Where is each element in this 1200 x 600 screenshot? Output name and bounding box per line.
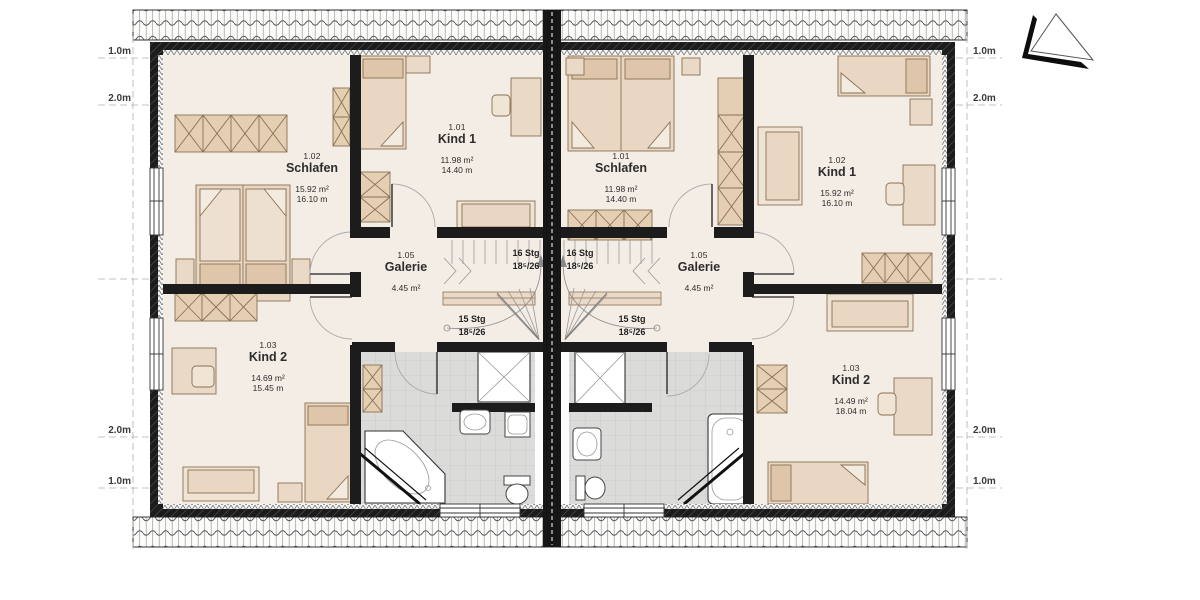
room-label-kind2-right: 1.03 Kind 2 14.49 m² 18.04 m — [832, 363, 870, 416]
stair-ratio: 18⁵/26 — [512, 260, 539, 273]
stair-label-16-right: 16 Stg 18⁵/26 — [566, 247, 593, 273]
height-label-left-1: 1.0m — [81, 46, 131, 57]
wardrobe-icon — [757, 365, 787, 413]
side-table-icon — [278, 483, 302, 502]
sink-icon — [573, 428, 601, 460]
window-left-1 — [150, 168, 163, 235]
height-label-right-4: 1.0m — [973, 476, 1023, 487]
room-area: 11.98 m² — [595, 184, 647, 194]
room-label-kind2-left: 1.03 Kind 2 14.69 m² 15.45 m — [249, 340, 287, 393]
nightstand-icon — [566, 58, 584, 75]
room-area: 14.69 m² — [249, 373, 287, 383]
height-label-right-2: 2.0m — [973, 93, 1023, 104]
stair-label-15-left: 15 Stg 18⁵/26 — [458, 313, 485, 339]
stair-ratio: 18⁵/26 — [458, 326, 485, 339]
wardrobe-icon — [862, 253, 932, 283]
height-label-left-4: 1.0m — [81, 476, 131, 487]
room-area: 14.49 m² — [832, 396, 870, 406]
window-right-1 — [942, 168, 955, 235]
window-right-2 — [942, 318, 955, 390]
nightstand-icon — [292, 259, 310, 285]
room-name: Kind 2 — [249, 350, 287, 365]
shower-icon — [478, 352, 530, 402]
sofa-icon — [183, 467, 259, 501]
wardrobe-icon — [175, 293, 257, 321]
room-name: Galerie — [678, 260, 720, 275]
toilet-icon — [576, 476, 605, 500]
shelf-icon — [910, 99, 932, 125]
room-label-galerie-left: 1.05 Galerie 4.45 m² — [385, 250, 427, 293]
room-perimeter: 16.10 m — [818, 198, 856, 208]
room-perimeter: 14.40 m — [595, 194, 647, 204]
room-number: 1.01 — [438, 122, 476, 132]
shelf-icon — [406, 56, 430, 73]
stair-steps: 16 Stg — [566, 247, 593, 260]
room-area: 11.98 m² — [438, 155, 476, 165]
window-left-2 — [150, 318, 163, 390]
stair-label-16-left: 16 Stg 18⁵/26 — [512, 247, 539, 273]
room-label-schlafen-right: 1.01 Schlafen 11.98 m² 14.40 m — [595, 151, 647, 204]
desk-icon — [172, 348, 216, 394]
north-arrow-icon — [1022, 14, 1093, 69]
bed-icon — [768, 462, 868, 504]
cabinet-icon — [333, 88, 350, 146]
shower-icon — [575, 352, 625, 404]
room-area: 4.45 m² — [678, 283, 720, 293]
bath-cabinet-icon — [363, 365, 382, 412]
room-number: 1.03 — [832, 363, 870, 373]
stair-steps: 16 Stg — [512, 247, 539, 260]
nightstand-icon — [682, 58, 700, 75]
room-number: 1.01 — [595, 151, 647, 161]
bed-icon — [305, 403, 351, 502]
room-number: 1.02 — [818, 155, 856, 165]
height-label-right-3: 2.0m — [973, 425, 1023, 436]
room-number: 1.05 — [385, 250, 427, 260]
sofa-icon — [827, 294, 913, 331]
nightstand-icon — [176, 259, 194, 285]
party-wall — [543, 10, 561, 547]
window-bottom-left — [440, 504, 520, 517]
room-label-kind1-right: 1.02 Kind 1 15.92 m² 16.10 m — [818, 155, 856, 208]
room-name: Schlafen — [286, 161, 338, 176]
floor-plan-svg — [0, 0, 1200, 600]
window-bottom-right — [584, 504, 664, 517]
height-label-left-2: 2.0m — [81, 93, 131, 104]
room-label-galerie-right: 1.05 Galerie 4.45 m² — [678, 250, 720, 293]
stair-ratio: 18⁵/26 — [618, 326, 645, 339]
height-label-right-1: 1.0m — [973, 46, 1023, 57]
wardrobe-icon — [360, 172, 390, 222]
room-label-kind1-left: 1.01 Kind 1 11.98 m² 14.40 m — [438, 122, 476, 175]
double-bed-icon — [196, 185, 290, 301]
bed-icon — [360, 56, 406, 149]
room-name: Kind 2 — [832, 373, 870, 388]
room-name: Kind 1 — [818, 165, 856, 180]
stair-ratio: 18⁵/26 — [566, 260, 593, 273]
room-number: 1.02 — [286, 151, 338, 161]
stair-steps: 15 Stg — [618, 313, 645, 326]
room-name: Galerie — [385, 260, 427, 275]
tall-wardrobe-icon — [718, 78, 745, 225]
sofa-icon — [758, 127, 802, 205]
washer-icon — [505, 412, 530, 437]
toilet-icon — [504, 476, 530, 504]
room-perimeter: 18.04 m — [832, 406, 870, 416]
room-name: Kind 1 — [438, 132, 476, 147]
floor-plan-page: 1.02 Schlafen 15.92 m² 16.10 m 1.01 Kind… — [0, 0, 1200, 600]
room-area: 15.92 m² — [286, 184, 338, 194]
height-label-left-3: 2.0m — [81, 425, 131, 436]
room-number: 1.03 — [249, 340, 287, 350]
room-area: 4.45 m² — [385, 283, 427, 293]
stair-label-15-right: 15 Stg 18⁵/26 — [618, 313, 645, 339]
room-number: 1.05 — [678, 250, 720, 260]
room-perimeter: 15.45 m — [249, 383, 287, 393]
wall-stub — [569, 403, 652, 412]
room-area: 15.92 m² — [818, 188, 856, 198]
bed-icon — [838, 56, 930, 96]
sink-icon — [460, 410, 490, 434]
room-perimeter: 14.40 m — [438, 165, 476, 175]
room-name: Schlafen — [595, 161, 647, 176]
room-perimeter: 16.10 m — [286, 194, 338, 204]
room-label-schlafen-left: 1.02 Schlafen 15.92 m² 16.10 m — [286, 151, 338, 204]
wardrobe-icon — [175, 115, 287, 152]
stair-steps: 15 Stg — [458, 313, 485, 326]
